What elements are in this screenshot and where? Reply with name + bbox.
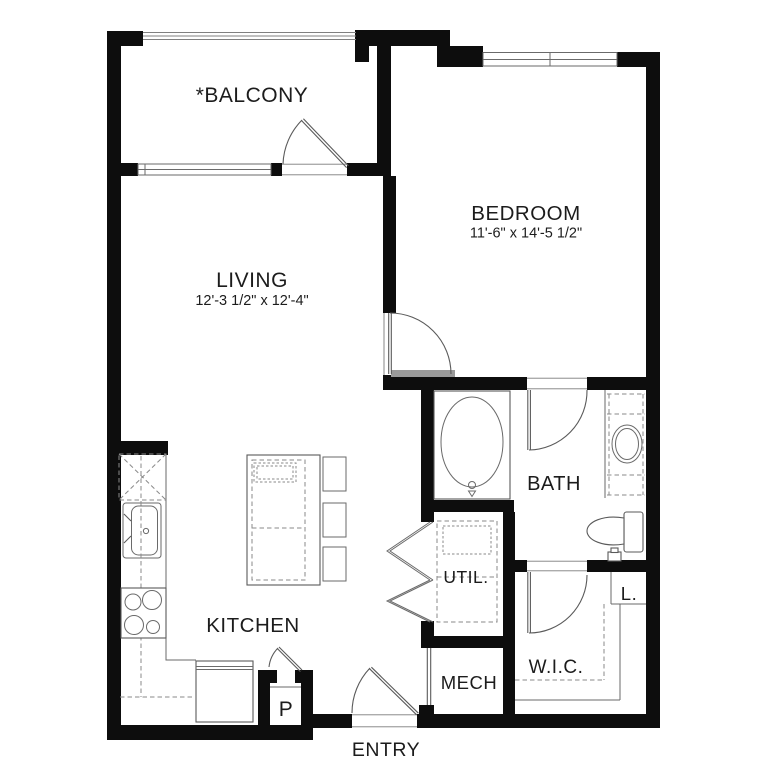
- pantry-door-swing-arc: [269, 648, 278, 667]
- wall-util-east-wic-west: [503, 512, 515, 726]
- wall-bedroom-window-left: [437, 46, 483, 67]
- room-label-bath: BATH: [527, 473, 581, 495]
- balcony-door-swing-arc: [283, 120, 302, 164]
- bath-door: [528, 390, 587, 450]
- balcony-sliding-window: [138, 164, 271, 175]
- wall-tub-south: [421, 500, 514, 512]
- wall-util-west-post: [421, 621, 434, 637]
- bedroom-door-leaf-open: [391, 370, 455, 377]
- wall-balcony-bedroom-divider: [377, 40, 391, 176]
- wall-balcony-post: [107, 31, 143, 46]
- toilet-icon: [587, 512, 643, 561]
- wall-util-mech-divider: [421, 636, 515, 648]
- bath-door-swing-arc: [529, 390, 587, 450]
- refrigerator-icon: [119, 454, 166, 500]
- room-label-pantry: P: [279, 698, 294, 721]
- wic-door-swing-arc: [529, 575, 587, 633]
- wall-bottom-kitchen: [107, 725, 313, 740]
- kitchen-sink-icon: [123, 503, 161, 558]
- wall-living-bedroom-divider: [383, 176, 396, 313]
- bar-stool-icon: [323, 547, 346, 581]
- wall-bath-south-left: [503, 560, 527, 572]
- wall-bath-north-right: [587, 377, 660, 390]
- wall-bottom-entry-left: [313, 714, 352, 728]
- room-label-mechanical: MECH: [441, 672, 497, 693]
- wall-bath-south-right: [587, 560, 660, 572]
- pantry-door: [269, 647, 302, 672]
- bedroom-window: [483, 53, 617, 67]
- walls: [107, 30, 660, 740]
- vanity-sink-icon: [605, 390, 645, 498]
- wall-balcony-south-mid: [271, 163, 282, 176]
- wall-kitchen-stub: [107, 441, 168, 455]
- bar-stool-icon: [323, 457, 346, 491]
- wall-pantry-east-cap: [295, 670, 313, 683]
- bedroom-door: [389, 313, 455, 377]
- room-label-bedroom: BEDROOM: [471, 202, 580, 225]
- bar-stools: [323, 457, 346, 581]
- wall-left-exterior: [107, 31, 121, 740]
- room-label-entry: ENTRY: [352, 739, 420, 761]
- floor-plan-svg: *BALCONY BEDROOM 11'-6" x 14'-5 1/2" LIV…: [0, 0, 768, 768]
- room-label-living: LIVING: [216, 269, 288, 292]
- wall-top-step-leg: [355, 46, 369, 62]
- wall-balcony-south-cap: [107, 163, 138, 176]
- mech-access-panel: [427, 648, 430, 705]
- room-labels: *BALCONY BEDROOM 11'-6" x 14'-5 1/2" LIV…: [195, 84, 637, 761]
- floor-plan-page: *BALCONY BEDROOM 11'-6" x 14'-5 1/2" LIV…: [0, 0, 768, 768]
- wall-top-step: [355, 30, 450, 46]
- wall-pantry-west-cap: [258, 670, 277, 683]
- balcony-railing: [143, 33, 356, 40]
- room-label-balcony: *BALCONY: [196, 84, 309, 107]
- bathtub-icon: [434, 391, 510, 499]
- room-label-wic: W.I.C.: [529, 657, 584, 678]
- balcony-door: [283, 119, 348, 168]
- room-dimensions-living: 12'-3 1/2" x 12'-4": [195, 293, 308, 309]
- room-dimensions-bedroom: 11'-6" x 14'-5 1/2": [470, 226, 582, 242]
- dishwasher-icon: [196, 661, 253, 722]
- wall-balcony-south-right: [347, 163, 391, 176]
- room-label-linen: L.: [621, 583, 637, 604]
- room-label-utility: UTIL.: [443, 567, 488, 587]
- kitchen-island: [247, 455, 320, 585]
- wall-bath-north-left: [394, 377, 527, 390]
- room-label-kitchen: KITCHEN: [206, 614, 299, 637]
- util-bifold-doors: [387, 522, 433, 622]
- range-icon: [121, 588, 166, 638]
- entry-door: [352, 667, 418, 715]
- bar-stool-icon: [323, 503, 346, 537]
- kitchen-counter-edge: [120, 455, 196, 697]
- entry-door-swing-arc: [352, 668, 370, 713]
- wall-bottom-right: [417, 714, 660, 728]
- bedroom-door-swing-arc: [390, 313, 451, 374]
- wic-door: [528, 572, 587, 633]
